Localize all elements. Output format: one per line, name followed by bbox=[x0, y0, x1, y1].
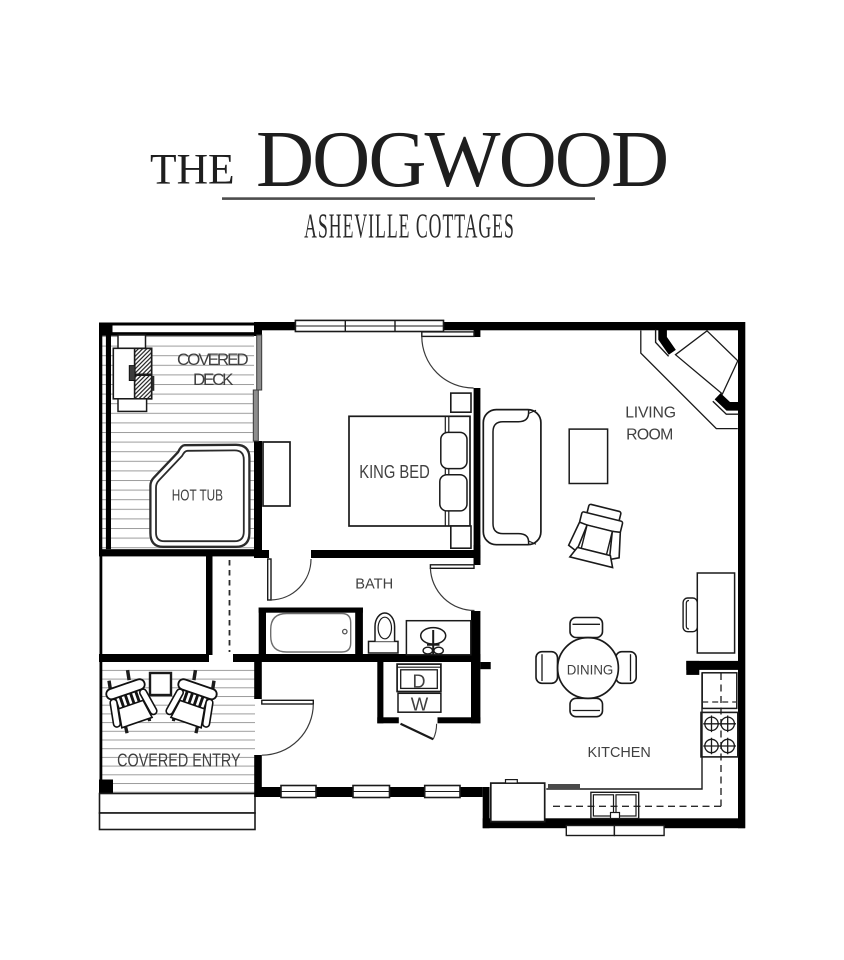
svg-text:ROOM: ROOM bbox=[626, 427, 673, 444]
svg-text:DINING: DINING bbox=[567, 662, 614, 677]
svg-text:ASHEVILLE COTTAGES: ASHEVILLE COTTAGES bbox=[304, 206, 515, 245]
svg-text:W: W bbox=[411, 694, 429, 715]
svg-text:KITCHEN: KITCHEN bbox=[588, 744, 651, 761]
svg-text:DOGWOOD: DOGWOOD bbox=[256, 115, 667, 204]
svg-text:LIVING: LIVING bbox=[625, 404, 676, 421]
svg-text:BATH: BATH bbox=[355, 577, 393, 593]
svg-text:HOT TUB: HOT TUB bbox=[172, 488, 223, 505]
svg-text:DECK: DECK bbox=[193, 370, 234, 389]
svg-text:THE: THE bbox=[150, 146, 235, 194]
svg-text:COVERED: COVERED bbox=[177, 350, 249, 369]
svg-text:KING BED: KING BED bbox=[359, 462, 430, 482]
svg-text:COVERED ENTRY: COVERED ENTRY bbox=[117, 750, 241, 770]
svg-text:D: D bbox=[413, 672, 426, 692]
